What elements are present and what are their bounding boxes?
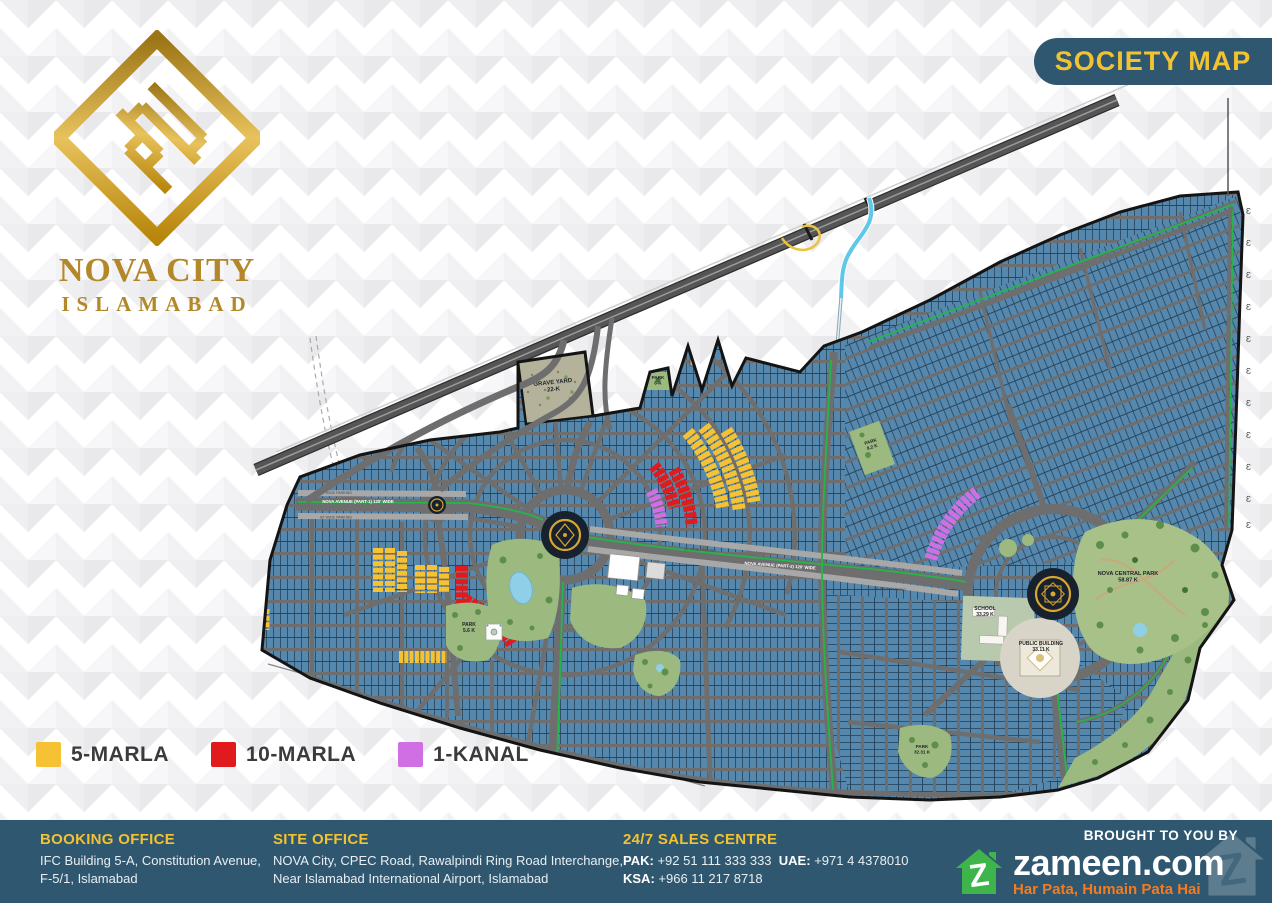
map-label: 60' WIDE PARKING (320, 516, 352, 520)
roundabout-center (541, 511, 589, 559)
booking-office-title: BOOKING OFFICE (40, 831, 273, 848)
site-office-line2: Near Islamabad International Airport, Is… (273, 870, 623, 888)
ksa-label: KSA: (623, 871, 655, 886)
pylon-icon: Ɛ (1246, 398, 1251, 408)
legend-swatch-10-marla (211, 742, 236, 767)
masjid (486, 624, 502, 640)
pylon-icon: Ɛ (1246, 334, 1251, 344)
site-office: SITE OFFICE NOVA City, CPEC Road, Rawalp… (273, 831, 623, 903)
nova-city-logo-icon (54, 30, 260, 246)
logo-subtitle: ISLAMABAD (40, 292, 274, 317)
legend-item-1-kanal: 1-KANAL (398, 742, 529, 767)
legend-label-1-kanal: 1-KANAL (433, 743, 529, 767)
pylon-icon: Ɛ (1246, 494, 1251, 504)
legend-swatch-5-marla (36, 742, 61, 767)
legend-item-10-marla: 10-MARLA (211, 742, 356, 767)
legend: 5-MARLA 10-MARLA 1-KANAL (36, 742, 529, 767)
pylon-icon: Ɛ (1246, 430, 1251, 440)
pylon-icon: Ɛ (1246, 270, 1251, 280)
legend-item-5-marla: 5-MARLA (36, 742, 169, 767)
sales-centre: 24/7 SALES CENTRE PAK: +92 51 111 333 33… (623, 831, 935, 903)
nw-track (310, 336, 343, 480)
map-label: SCHOOL33.29 K (974, 606, 995, 618)
pylon-icon: Ɛ (1246, 206, 1251, 216)
zameen-branding: BROUGHT TO YOU BY Z zameen.com Har Pata,… (935, 820, 1272, 903)
society-map-banner: SOCIETY MAP (1034, 38, 1272, 85)
pylon-icon: Ɛ (1246, 238, 1251, 248)
booking-office-line2: F-5/1, Islamabad (40, 870, 273, 888)
zameen-tagline: Har Pata, Humain Pata Hai (1013, 881, 1224, 898)
logo-title: NOVA CITY (40, 252, 274, 290)
sales-centre-line2: KSA: +966 11 217 8718 (623, 870, 935, 888)
pylon-icon: Ɛ (1246, 366, 1251, 376)
legend-label-5-marla: 5-MARLA (71, 743, 169, 767)
legend-label-10-marla: 10-MARLA (246, 743, 356, 767)
footer: BOOKING OFFICE IFC Building 5-A, Constit… (0, 820, 1272, 903)
nova-city-logo: NOVA CITY ISLAMABAD (40, 30, 274, 317)
site-office-line1: NOVA City, CPEC Road, Rawalpindi Ring Ro… (273, 852, 623, 870)
pylon-icon: Ɛ (1246, 462, 1251, 472)
map-label: PARK32.31 K (914, 744, 931, 755)
map-label: NOVA AVENUE (PART-1) 120' WIDE (322, 499, 394, 504)
map-label: PARK5.6 K (462, 622, 476, 634)
zameen-wordmark[interactable]: zameen.com (1013, 846, 1224, 880)
uae-number[interactable]: +971 4 4378010 (814, 853, 908, 868)
banner-label: SOCIETY MAP (1055, 46, 1252, 77)
public-building (1000, 618, 1080, 698)
roundabout-east (1027, 568, 1079, 620)
legend-swatch-1-kanal (398, 742, 423, 767)
pylon-icon: Ɛ (1246, 302, 1251, 312)
zameen-house-icon: Z (953, 846, 1005, 898)
pylon-icon: Ɛ (1246, 520, 1251, 530)
zameen-watermark-icon: Z (1196, 829, 1268, 901)
uae-label: UAE: (779, 853, 811, 868)
roundabout-west (428, 496, 446, 514)
ksa-number[interactable]: +966 11 217 8718 (658, 871, 762, 886)
sales-centre-title: 24/7 SALES CENTRE (623, 831, 935, 848)
pak-label: PAK: (623, 853, 654, 868)
booking-office-line1: IFC Building 5-A, Constitution Avenue, (40, 852, 273, 870)
site-office-title: SITE OFFICE (273, 831, 623, 848)
pak-number[interactable]: +92 51 111 333 333 (657, 853, 771, 868)
sales-centre-line1: PAK: +92 51 111 333 333 UAE: +971 4 4378… (623, 852, 935, 870)
power-pylon-symbols: ƐƐƐƐƐƐƐƐƐƐƐ (1246, 206, 1251, 530)
booking-office: BOOKING OFFICE IFC Building 5-A, Constit… (40, 831, 273, 903)
